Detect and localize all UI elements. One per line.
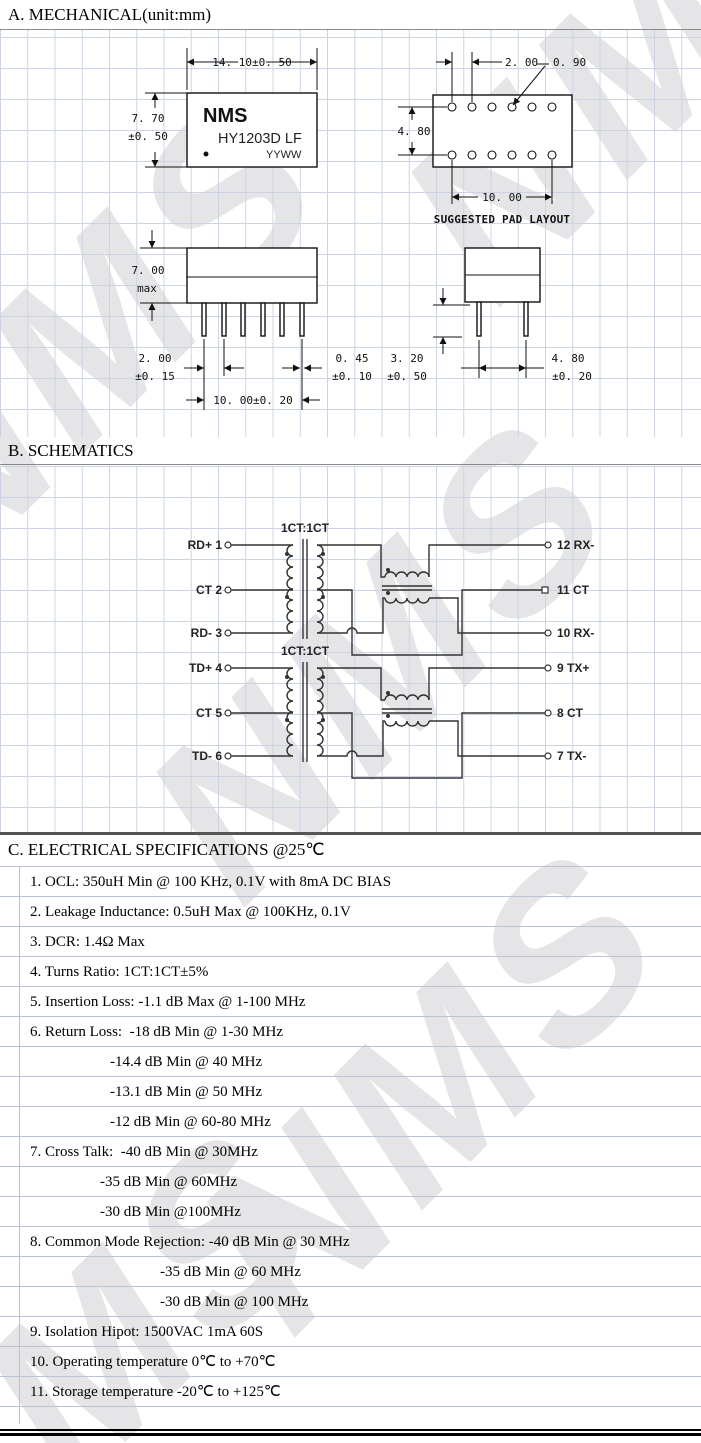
pad-layout-caption: SUGGESTED PAD LAYOUT — [434, 213, 571, 226]
spec-row-ocl: 1. OCL: 350uH Min @ 100 KHz, 0.1V with 8… — [0, 867, 701, 897]
pin-label-12-rx: 12 RX- — [557, 538, 594, 552]
package-brand: NMS — [203, 105, 247, 127]
dim-body-height: 7. 70 — [131, 112, 164, 125]
spec-text: -14.4 dB Min @ 40 MHz — [110, 1054, 262, 1070]
pin-label-8-ct: 8 CT — [557, 706, 584, 720]
section-a-title: A. MECHANICAL(unit:mm) — [0, 0, 701, 30]
pin-label-ct-5: CT 5 — [196, 706, 222, 720]
spec-text: 2. Leakage Inductance: 0.5uH Max @ 100KH… — [30, 904, 351, 920]
section-c-title: C. ELECTRICAL SPECIFICATIONS @25℃ — [0, 835, 701, 866]
datasheet-page: NMS NMS NMS NMS NMS A. MECHANICAL(unit:m… — [0, 0, 701, 1443]
dim-body-height-tol: ±0. 50 — [128, 130, 168, 143]
transformer-secondary-coil — [317, 545, 323, 633]
schematic-channel-tx: 1CT:1CT TD+ 4 CT 5 TD- 6 9 TX+ 8 CT 7 TX… — [189, 644, 589, 778]
spec-text: 3. DCR: 1.4Ω Max — [30, 934, 145, 950]
dim-pad-span: 10. 00 — [482, 191, 522, 204]
section-b-title: B. SCHEMATICS — [0, 437, 701, 465]
suggested-pad-layout: 2. 00 0. 90 4. 80 10. 00 SUGGESTED PAD L… — [397, 52, 586, 226]
dim-height-max-label: max — [137, 282, 157, 295]
pin-label-td-minus-6: TD- 6 — [192, 749, 222, 763]
spec-text: -35 dB Min @ 60MHz — [100, 1174, 237, 1190]
spec-text: -13.1 dB Min @ 50 MHz — [110, 1084, 262, 1100]
pin-label-9-tx: 9 TX+ — [557, 661, 589, 675]
spec-row-insertion-loss: 5. Insertion Loss: -1.1 dB Max @ 1-100 M… — [0, 987, 701, 1017]
spec-text: 11. Storage temperature -20℃ to +125℃ — [30, 1384, 281, 1400]
dim-pad-diameter: 0. 90 — [553, 56, 586, 69]
spec-text: 8. Common Mode Rejection: -40 dB Min @ 3… — [30, 1234, 350, 1250]
spec-table-gutter-line — [19, 866, 20, 1424]
spec-text: 9. Isolation Hipot: 1500VAC 1mA 60S — [30, 1324, 263, 1340]
pin1-marker-dot — [204, 152, 209, 157]
spec-row-cross-talk: 7. Cross Talk: -40 dB Min @ 30MHz — [0, 1137, 701, 1167]
spec-text: -30 dB Min @100MHz — [100, 1204, 241, 1220]
turns-ratio-label-tx: 1CT:1CT — [281, 644, 330, 658]
dim-pin-width: 0. 45 — [335, 352, 368, 365]
dim-standoff-tol: ±0. 50 — [387, 370, 427, 383]
mechanical-drawing: NMS HY1203D LF YYWW 14. 10±0. 50 7. 70 ±… — [0, 30, 701, 437]
pin-label-7-tx: 7 TX- — [557, 749, 586, 763]
dim-row-depth: 4. 80 — [551, 352, 584, 365]
package-front-view: 7. 00 max 2. 00 ±0. 15 0. 45 ±0. 10 10. … — [131, 230, 371, 410]
spec-row-cmr-60: -35 dB Min @ 60 MHz — [0, 1257, 701, 1287]
spec-row-hipot: 9. Isolation Hipot: 1500VAC 1mA 60S — [0, 1317, 701, 1347]
pin-label-rd-plus-1: RD+ 1 — [188, 538, 223, 552]
package-top-view: NMS HY1203D LF YYWW 14. 10±0. 50 7. 70 ±… — [128, 48, 317, 167]
page-bottom-rule — [0, 1429, 701, 1436]
dim-row-depth-tol: ±0. 20 — [552, 370, 592, 383]
spec-row-return-loss-60-80: -12 dB Min @ 60-80 MHz — [0, 1107, 701, 1137]
dim-standoff: 3. 20 — [390, 352, 423, 365]
spec-text: 7. Cross Talk: -40 dB Min @ 30MHz — [30, 1144, 258, 1160]
transformer-primary-coil — [287, 545, 293, 633]
package-part-number: HY1203D LF — [218, 131, 302, 147]
pin-label-10-rx: 10 RX- — [557, 626, 594, 640]
package-date-code: YYWW — [266, 149, 302, 161]
choke-coil-bottom — [385, 721, 429, 726]
spec-table: 1. OCL: 350uH Min @ 100 KHz, 0.1V with 8… — [0, 866, 701, 1407]
pin-label-rd-minus-3: RD- 3 — [191, 626, 223, 640]
spec-text: 6. Return Loss: -18 dB Min @ 1-30 MHz — [30, 1024, 283, 1040]
schematic-channel-rx: 1CT:1CT RD+ 1 CT 2 RD- 3 12 RX- 11 CT 10… — [188, 521, 595, 655]
dim-pin-span: 10. 00±0. 20 — [213, 394, 292, 407]
spec-row-cross-talk-100: -30 dB Min @100MHz — [0, 1197, 701, 1227]
spec-row-cmr: 8. Common Mode Rejection: -40 dB Min @ 3… — [0, 1227, 701, 1257]
pin-label-11-ct: 11 CT — [557, 583, 590, 597]
dim-pin-width-tol: ±0. 10 — [332, 370, 372, 383]
terminal-11-square — [542, 587, 548, 593]
spec-row-return-loss: 6. Return Loss: -18 dB Min @ 1-30 MHz — [0, 1017, 701, 1047]
pin-label-td-plus-4: TD+ 4 — [189, 661, 222, 675]
spec-row-return-loss-50: -13.1 dB Min @ 50 MHz — [0, 1077, 701, 1107]
spec-text: -12 dB Min @ 60-80 MHz — [110, 1114, 271, 1130]
transformer-secondary-coil — [317, 668, 323, 756]
spec-text: -35 dB Min @ 60 MHz — [160, 1264, 301, 1280]
dim-pin-pitch-tol: ±0. 15 — [135, 370, 175, 383]
spec-text: 4. Turns Ratio: 1CT:1CT±5% — [30, 964, 208, 980]
spec-row-cmr-100: -30 dB Min @ 100 MHz — [0, 1287, 701, 1317]
package-side-view: 3. 20 ±0. 50 4. 80 ±0. 20 — [387, 248, 592, 383]
choke-coil-top — [385, 695, 429, 700]
spec-row-dcr: 3. DCR: 1.4Ω Max — [0, 927, 701, 957]
spec-row-turns-ratio: 4. Turns Ratio: 1CT:1CT±5% — [0, 957, 701, 987]
spec-row-cross-talk-60: -35 dB Min @ 60MHz — [0, 1167, 701, 1197]
spec-text: 10. Operating temperature 0℃ to +70℃ — [30, 1354, 275, 1370]
choke-coil-top — [385, 572, 429, 577]
spec-text: 1. OCL: 350uH Min @ 100 KHz, 0.1V with 8… — [30, 874, 391, 890]
spec-row-operating-temp: 10. Operating temperature 0℃ to +70℃ — [0, 1347, 701, 1377]
transformer-primary-coil — [287, 668, 293, 756]
dim-pad-row-spacing: 4. 80 — [397, 125, 430, 138]
dim-pin-pitch: 2. 00 — [138, 352, 171, 365]
dim-body-width: 14. 10±0. 50 — [212, 56, 291, 69]
choke-coil-bottom — [385, 598, 429, 603]
dim-height-max: 7. 00 — [131, 264, 164, 277]
spec-row-storage-temp: 11. Storage temperature -20℃ to +125℃ — [0, 1377, 701, 1407]
spec-row-leakage: 2. Leakage Inductance: 0.5uH Max @ 100KH… — [0, 897, 701, 927]
dim-pad-pitch: 2. 00 — [505, 56, 538, 69]
spec-row-return-loss-40: -14.4 dB Min @ 40 MHz — [0, 1047, 701, 1077]
turns-ratio-label-rx: 1CT:1CT — [281, 521, 330, 535]
spec-text: -30 dB Min @ 100 MHz — [160, 1294, 308, 1310]
pin-label-ct-2: CT 2 — [196, 583, 222, 597]
schematic-drawing: 1CT:1CT RD+ 1 CT 2 RD- 3 12 RX- 11 CT 10… — [0, 466, 701, 832]
spec-text: 5. Insertion Loss: -1.1 dB Max @ 1-100 M… — [30, 994, 305, 1010]
